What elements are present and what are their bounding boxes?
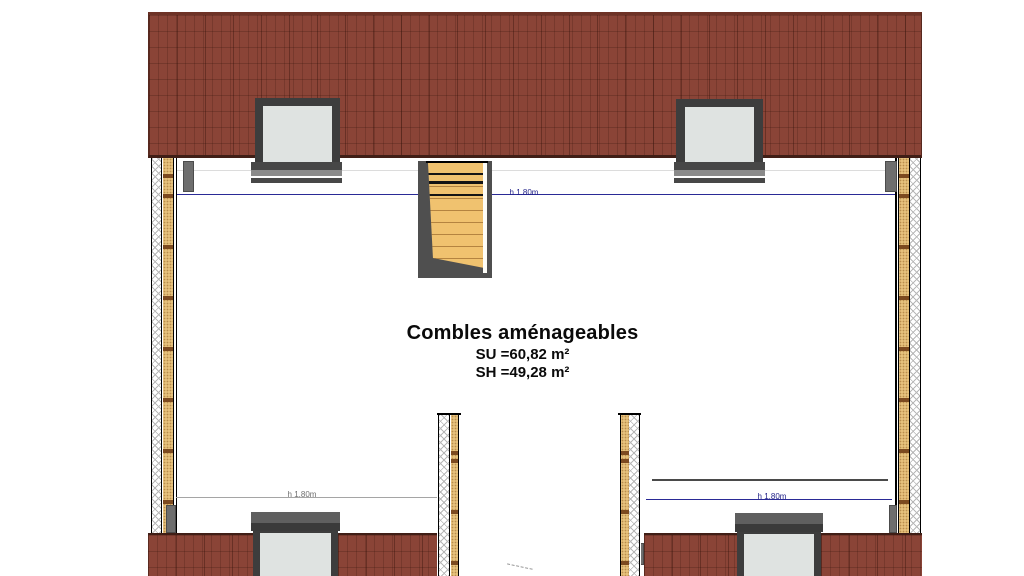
partition-wall-right xyxy=(618,413,641,576)
roof-window-glass xyxy=(263,106,332,163)
wall-hatch-layer xyxy=(151,158,162,535)
wall-post-top-left xyxy=(183,161,194,192)
wall-post-bottom-right xyxy=(889,505,897,533)
dimension-label-bottom-left: h 1.80m xyxy=(276,490,328,499)
wall-post-bottom-left xyxy=(166,505,176,533)
roof-band-bottom-far-right xyxy=(821,533,922,576)
wall-hatch-layer xyxy=(629,415,640,576)
stair-side-gap xyxy=(483,163,487,273)
staircase xyxy=(418,161,492,278)
stair-top-edge xyxy=(426,161,488,163)
room-label: Combles aménageables SU =60,82 m² SH =49… xyxy=(380,322,665,381)
plate-line-bottom-right xyxy=(652,479,888,481)
roof-window-bottom-right xyxy=(735,513,823,576)
sketch-mark xyxy=(505,563,532,576)
wall-insulation-layer xyxy=(898,158,909,535)
wall-insulation-layer xyxy=(451,415,459,576)
roof-band-bottom-left xyxy=(338,533,437,576)
wall-insulation-layer xyxy=(620,415,629,576)
exterior-wall-left xyxy=(150,158,177,535)
roof-window-sill xyxy=(251,162,342,183)
wall-hatch-layer xyxy=(438,415,450,576)
roof-window-bottom-left xyxy=(251,512,340,576)
surface-habitable-value: SH =49,28 m² xyxy=(380,364,665,381)
room-title: Combles aménageables xyxy=(380,322,665,345)
wall-post-top-right xyxy=(885,161,897,192)
roof-window-glass xyxy=(685,107,754,163)
exterior-wall-right xyxy=(895,158,922,535)
wall-inner-line xyxy=(895,158,897,535)
wall-inner-line xyxy=(176,158,178,535)
roof-window-glass xyxy=(260,533,331,576)
wall-insulation-layer xyxy=(163,158,174,535)
floor-plan-canvas: h 1.80m xyxy=(0,0,1024,576)
dimension-label-top: h 1.80m xyxy=(498,188,550,197)
roof-window-glass xyxy=(744,534,814,576)
partition-wall-left xyxy=(437,413,461,576)
stair-treads xyxy=(428,163,483,271)
dimension-label-bottom-right: h 1.80m xyxy=(744,492,800,501)
wall-hatch-layer xyxy=(909,158,921,535)
roof-band-bottom-right xyxy=(644,533,737,576)
roof-window-top-right xyxy=(674,98,765,183)
roof-window-sill xyxy=(674,162,765,183)
roof-band-bottom-far-left xyxy=(148,533,253,576)
roof-window-top-left xyxy=(251,97,342,183)
surface-utile-value: SU =60,82 m² xyxy=(380,346,665,363)
